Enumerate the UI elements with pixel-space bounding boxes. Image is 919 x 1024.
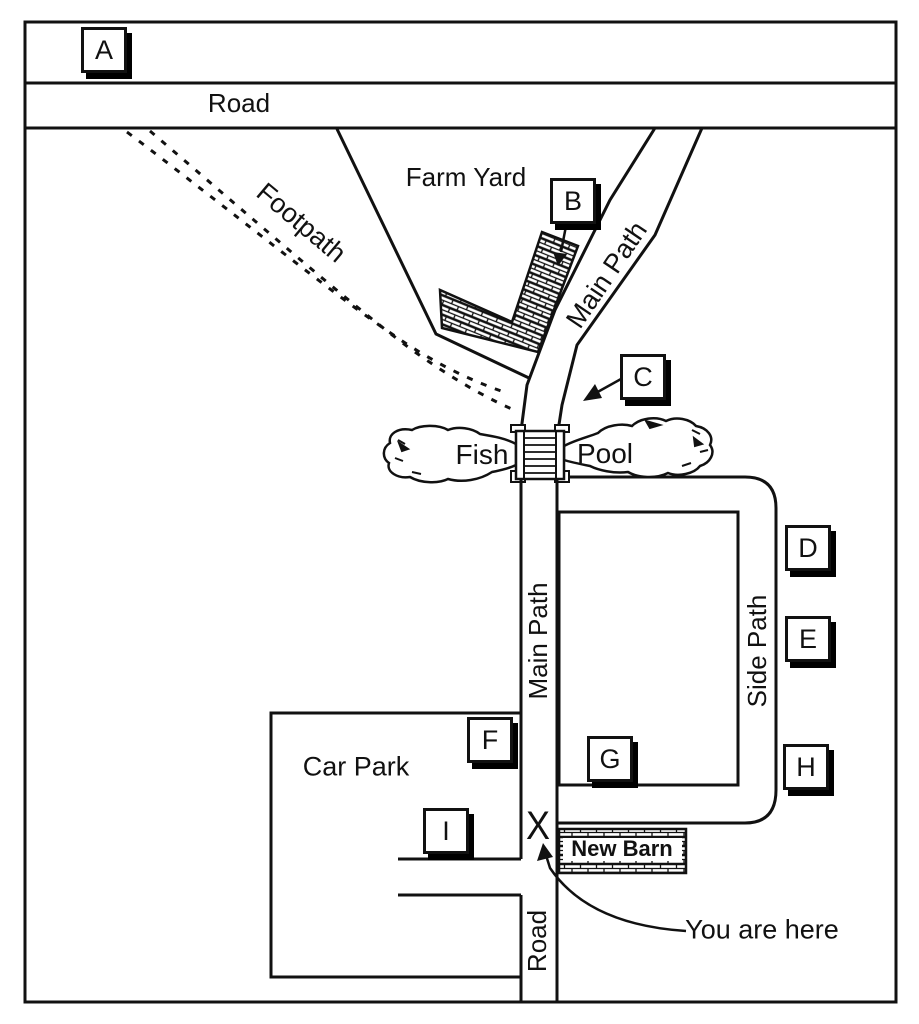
marker-i: I	[423, 808, 469, 854]
farm-yard-label: Farm Yard	[406, 164, 526, 190]
marker-h: H	[783, 744, 829, 790]
map-drawing	[0, 0, 919, 1024]
road-top-band	[25, 83, 896, 128]
new-barn-label: New Barn	[571, 838, 672, 860]
farm-park-map: Road Farm Yard Footpath Main Path Fish P…	[0, 0, 919, 1024]
marker-f: F	[467, 717, 513, 763]
marker-a: A	[81, 27, 127, 73]
road-top-label: Road	[208, 90, 270, 116]
field-enclosure	[559, 512, 738, 785]
marker-d: D	[785, 525, 831, 571]
car-park-label: Car Park	[303, 754, 410, 781]
marker-g: G	[587, 736, 633, 782]
marker-e: E	[785, 616, 831, 662]
marker-c: C	[620, 354, 666, 400]
car-park-entrance	[398, 859, 521, 895]
building-b	[440, 232, 578, 352]
you-are-here-label: You are here	[685, 917, 839, 944]
marker-c-arrow	[583, 379, 621, 401]
side-path-label: Side Path	[744, 595, 770, 708]
fish-label: Fish	[456, 441, 509, 469]
marker-b: B	[550, 178, 596, 224]
you-are-here-x-mark: X	[526, 806, 550, 846]
bridge	[511, 425, 569, 482]
main-path-lower-label: Main Path	[525, 582, 551, 699]
road-bottom-label: Road	[524, 910, 550, 972]
pool-label: Pool	[577, 440, 633, 468]
